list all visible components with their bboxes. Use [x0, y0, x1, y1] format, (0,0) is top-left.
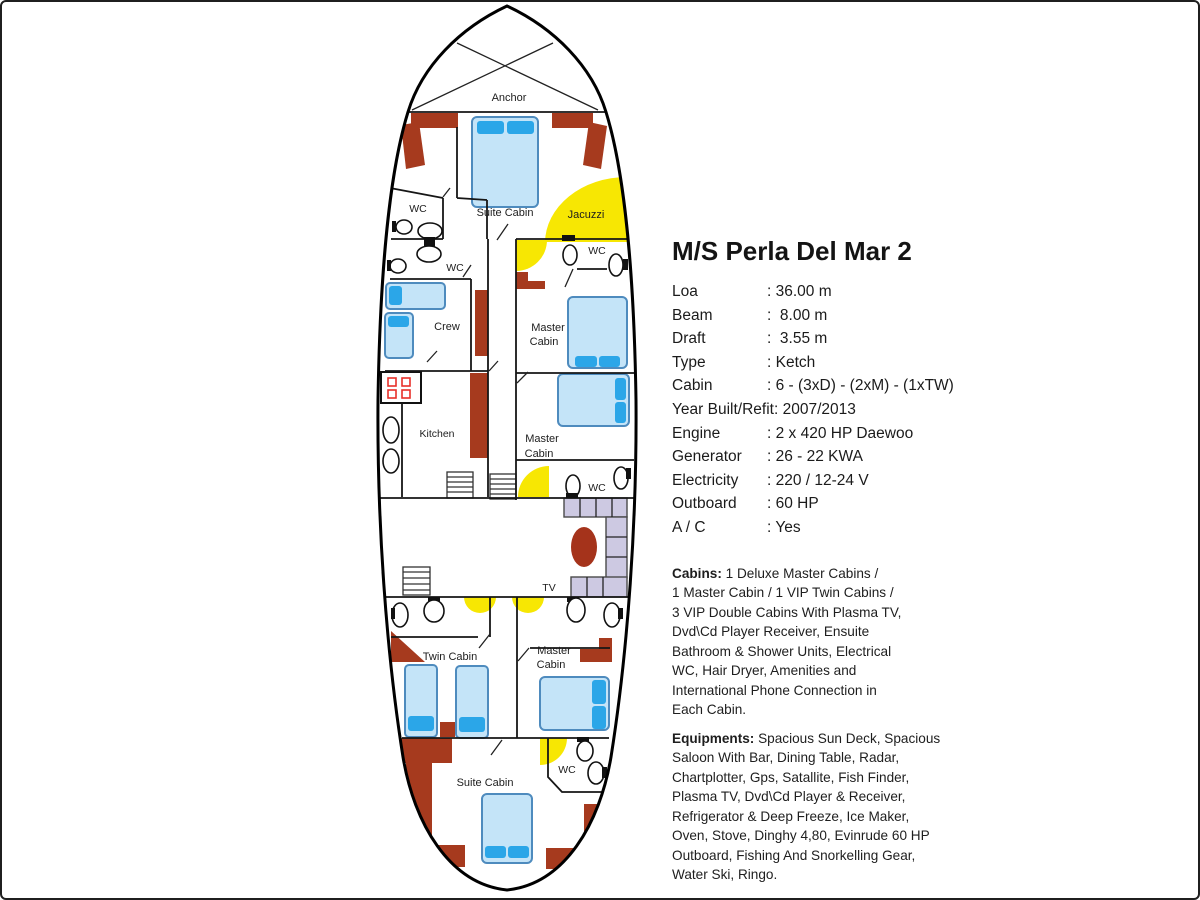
label-wc-bow-lower: WC [446, 262, 464, 274]
label-twin-cabin: Twin Cabin [423, 651, 477, 663]
spec-row-year-built: Year Built/Refit: 2007/2013 [672, 398, 992, 422]
spec-row-cabin: Cabin: 6 - (3xD) - (2xM) - (1xTW) [672, 374, 992, 398]
deck-plan: Anchor WC Suite Cabin Jacuzzi WC WC Crew… [0, 0, 1200, 900]
spec-value: : Ketch [767, 351, 815, 375]
label-wc-master1: WC [588, 245, 606, 257]
equipments-paragraph: Equipments: Spacious Sun Deck, Spacious … [672, 729, 962, 885]
label-master3: Master [537, 645, 571, 657]
spec-label: Type [672, 351, 767, 375]
label-master2-2: Cabin [525, 448, 554, 460]
label-suite-bow: Suite Cabin [477, 207, 534, 219]
spec-value: : 60 HP [767, 492, 819, 516]
spec-label: Draft [672, 327, 767, 351]
label-master1: Master [531, 322, 565, 334]
spec-value: : 26 - 22 KWA [767, 445, 863, 469]
spec-row-draft: Draft: 3.55 m [672, 327, 992, 351]
spec-value: : 36.00 m [767, 280, 832, 304]
cabins-paragraph: Cabins: 1 Deluxe Master Cabins / 1 Maste… [672, 564, 962, 720]
label-anchor: Anchor [492, 92, 527, 104]
spec-value: : 220 / 12-24 V [767, 469, 869, 493]
spec-value: : 2007/2013 [774, 398, 856, 422]
page-title: M/S Perla Del Mar 2 [672, 236, 992, 267]
spec-label: Cabin [672, 374, 767, 398]
spec-row-beam: Beam: 8.00 m [672, 304, 992, 328]
label-wc-bow-upper: WC [409, 203, 427, 215]
spec-value: : 8.00 m [767, 304, 827, 328]
spec-row-type: Type: Ketch [672, 351, 992, 375]
spec-value: : 3.55 m [767, 327, 827, 351]
cabins-body: 1 Deluxe Master Cabins / 1 Master Cabin … [672, 566, 901, 718]
stove [381, 372, 421, 403]
label-wc-suite-aft: WC [558, 764, 576, 776]
spec-row-outboard: Outboard: 60 HP [672, 492, 992, 516]
spec-row-loa: Loa: 36.00 m [672, 280, 992, 304]
spec-label: Generator [672, 445, 767, 469]
spec-label: Engine [672, 422, 767, 446]
spec-row-ac: A / C: Yes [672, 516, 992, 540]
label-master1-2: Cabin [530, 336, 559, 348]
equipments-body: Spacious Sun Deck, Spacious Saloon With … [672, 731, 940, 883]
label-wc-master2: WC [588, 482, 606, 494]
spec-value: : Yes [767, 516, 801, 540]
label-crew: Crew [434, 321, 460, 333]
spec-value: : 6 - (3xD) - (2xM) - (1xTW) [767, 374, 954, 398]
spec-row-engine: Engine: 2 x 420 HP Daewoo [672, 422, 992, 446]
spec-label: Loa [672, 280, 767, 304]
spec-label: Beam [672, 304, 767, 328]
label-kitchen: Kitchen [419, 428, 454, 440]
spec-row-generator: Generator: 26 - 22 KWA [672, 445, 992, 469]
label-suite-aft: Suite Cabin [457, 777, 514, 789]
spec-label: Year Built/Refit [672, 398, 774, 422]
spec-label: Electricity [672, 469, 767, 493]
spec-row-electricity: Electricity: 220 / 12-24 V [672, 469, 992, 493]
equipments-heading: Equipments: [672, 731, 754, 746]
spec-panel: M/S Perla Del Mar 2 Loa: 36.00 m Beam: 8… [672, 236, 992, 540]
spec-label: A / C [672, 516, 767, 540]
cabins-heading: Cabins: [672, 566, 722, 581]
spec-label: Outboard [672, 492, 767, 516]
label-master2: Master [525, 433, 559, 445]
label-jacuzzi: Jacuzzi [568, 209, 605, 221]
label-master3-2: Cabin [537, 659, 566, 671]
spec-value: : 2 x 420 HP Daewoo [767, 422, 913, 446]
label-tv: TV [542, 582, 555, 594]
saloon-table [571, 527, 597, 567]
